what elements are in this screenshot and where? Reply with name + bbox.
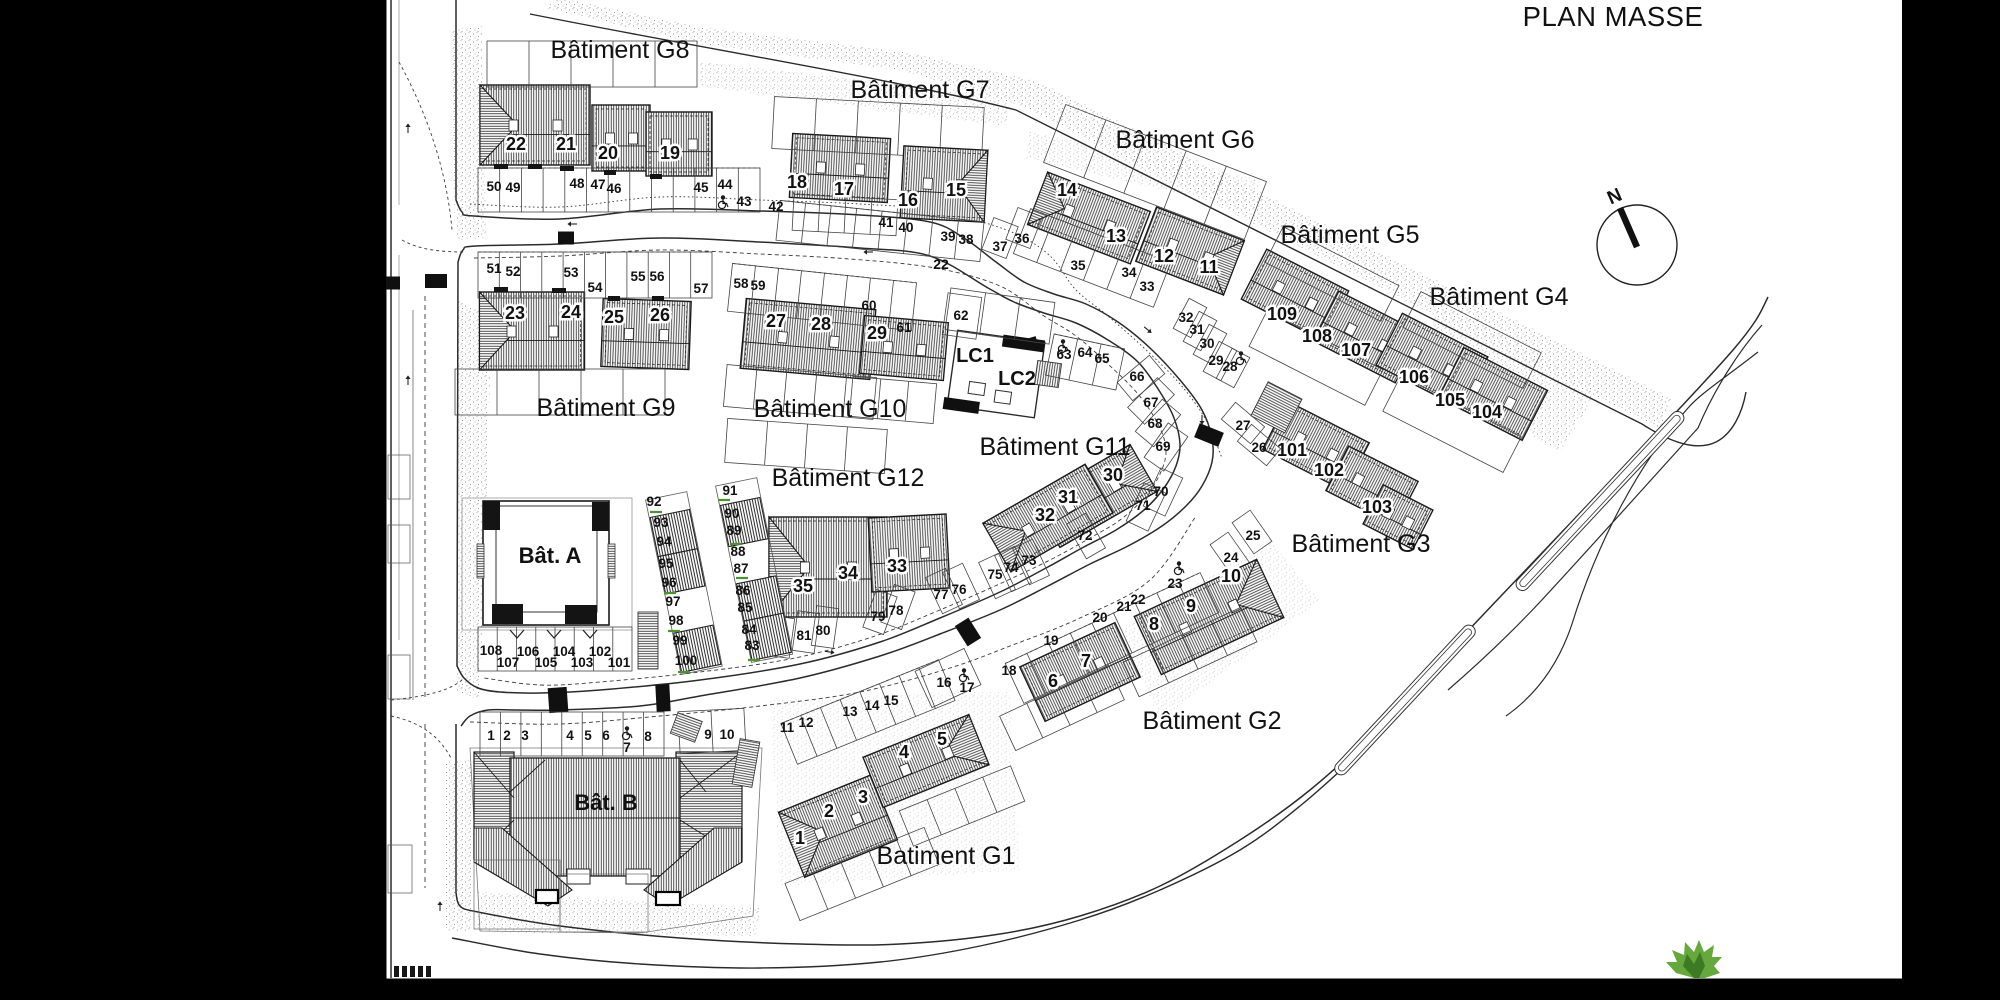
svg-text:4: 4: [899, 742, 909, 762]
svg-text:38: 38: [958, 232, 974, 247]
svg-text:88: 88: [730, 544, 746, 559]
svg-text:31: 31: [1058, 487, 1078, 507]
svg-text:59: 59: [750, 278, 765, 293]
svg-text:3: 3: [858, 787, 868, 807]
svg-text:106: 106: [1399, 367, 1429, 387]
svg-text:27: 27: [1235, 418, 1250, 433]
svg-text:60: 60: [861, 298, 876, 313]
svg-text:107: 107: [1341, 340, 1371, 360]
svg-text:PLAN MASSE: PLAN MASSE: [1523, 1, 1704, 32]
svg-text:10: 10: [719, 727, 734, 742]
svg-text:66: 66: [1129, 369, 1145, 384]
svg-text:11: 11: [1199, 257, 1218, 277]
svg-text:87: 87: [733, 561, 748, 576]
svg-text:95: 95: [658, 556, 674, 571]
svg-text:68: 68: [1147, 416, 1163, 431]
svg-text:84: 84: [741, 622, 757, 637]
svg-text:23: 23: [505, 303, 525, 323]
svg-text:Bâtiment G11: Bâtiment G11: [979, 433, 1130, 461]
svg-text:57: 57: [693, 281, 708, 296]
svg-text:43: 43: [736, 194, 752, 209]
svg-text:34: 34: [1121, 265, 1137, 280]
svg-text:47: 47: [590, 177, 605, 192]
svg-text:34: 34: [838, 563, 858, 583]
svg-text:35: 35: [1070, 258, 1086, 273]
svg-text:58: 58: [733, 276, 749, 291]
svg-text:12: 12: [1154, 246, 1174, 266]
svg-text:100: 100: [675, 653, 698, 668]
svg-text:33: 33: [1139, 279, 1155, 294]
svg-text:Bâtiment G6: Bâtiment G6: [1116, 126, 1255, 154]
svg-text:8: 8: [644, 729, 652, 744]
svg-text:55: 55: [630, 269, 646, 284]
svg-text:16: 16: [936, 675, 952, 690]
svg-text:22: 22: [933, 256, 949, 272]
svg-text:13: 13: [1106, 226, 1126, 246]
svg-text:54: 54: [587, 280, 603, 295]
svg-text:29: 29: [867, 323, 887, 343]
svg-text:6: 6: [602, 728, 610, 743]
svg-text:105: 105: [1435, 390, 1465, 410]
svg-text:7: 7: [623, 740, 631, 755]
svg-text:98: 98: [668, 613, 684, 628]
svg-text:91: 91: [722, 483, 738, 498]
svg-text:10: 10: [1221, 566, 1241, 586]
svg-text:35: 35: [793, 576, 813, 596]
svg-text:36: 36: [1014, 231, 1030, 246]
svg-text:39: 39: [940, 229, 955, 244]
svg-text:70: 70: [1153, 484, 1168, 499]
svg-text:50: 50: [486, 179, 501, 194]
svg-text:53: 53: [563, 265, 579, 280]
svg-text:Bâtiment G3: Bâtiment G3: [1292, 530, 1431, 558]
svg-text:15: 15: [883, 693, 899, 708]
svg-text:29: 29: [1208, 353, 1223, 368]
svg-text:108: 108: [1302, 326, 1332, 346]
svg-text:45: 45: [693, 180, 709, 195]
svg-text:15: 15: [946, 180, 966, 200]
svg-text:42: 42: [768, 199, 783, 214]
svg-text:25: 25: [1245, 528, 1261, 543]
svg-text:93: 93: [653, 515, 669, 530]
svg-text:32: 32: [1035, 505, 1055, 525]
svg-text:23: 23: [1167, 576, 1183, 591]
svg-text:2: 2: [824, 801, 834, 821]
svg-text:77: 77: [933, 587, 948, 602]
svg-text:22: 22: [1130, 592, 1145, 607]
svg-text:81: 81: [796, 628, 812, 643]
svg-text:78: 78: [888, 603, 904, 618]
svg-text:13: 13: [842, 704, 858, 719]
svg-text:83: 83: [744, 638, 760, 653]
svg-text:74: 74: [1003, 560, 1019, 575]
svg-text:104: 104: [1472, 402, 1502, 422]
svg-text:71: 71: [1135, 498, 1151, 513]
svg-text:24: 24: [1223, 550, 1239, 565]
svg-text:61: 61: [896, 320, 912, 335]
svg-text:18: 18: [787, 172, 807, 192]
svg-text:18: 18: [1001, 663, 1017, 678]
svg-text:75: 75: [987, 567, 1003, 582]
svg-text:96: 96: [661, 575, 677, 590]
svg-text:Bâtiment G2: Bâtiment G2: [1143, 707, 1282, 735]
svg-text:24: 24: [561, 302, 581, 322]
svg-text:14: 14: [1057, 180, 1077, 200]
svg-text:6: 6: [1048, 671, 1058, 691]
svg-text:48: 48: [569, 176, 585, 191]
svg-text:76: 76: [951, 582, 967, 597]
svg-text:28: 28: [1222, 359, 1238, 374]
svg-text:3: 3: [521, 728, 529, 743]
svg-text:20: 20: [598, 143, 618, 163]
svg-text:21: 21: [556, 134, 576, 154]
svg-text:79: 79: [870, 609, 885, 624]
svg-text:Bât. A: Bât. A: [519, 543, 582, 568]
svg-text:5: 5: [937, 729, 947, 749]
svg-text:102: 102: [1314, 460, 1344, 480]
svg-text:109: 109: [1267, 304, 1297, 324]
svg-text:22: 22: [506, 134, 526, 154]
svg-text:73: 73: [1021, 553, 1037, 568]
svg-text:30: 30: [1199, 336, 1214, 351]
svg-text:1: 1: [795, 828, 805, 848]
svg-text:Bâtiment G5: Bâtiment G5: [1281, 221, 1420, 249]
svg-text:Bâtiment G12: Bâtiment G12: [772, 464, 925, 492]
svg-text:Bâtiment G10: Bâtiment G10: [754, 395, 907, 423]
svg-text:27: 27: [766, 311, 786, 331]
svg-text:9: 9: [704, 727, 712, 742]
svg-text:101: 101: [1277, 440, 1307, 460]
svg-text:40: 40: [898, 220, 913, 235]
svg-text:90: 90: [724, 506, 739, 521]
svg-text:Bâtiment G8: Bâtiment G8: [551, 36, 690, 64]
svg-text:11: 11: [780, 720, 795, 735]
svg-text:17: 17: [959, 680, 974, 695]
svg-text:31: 31: [1189, 322, 1205, 337]
svg-text:17: 17: [834, 179, 854, 199]
svg-text:103: 103: [1362, 497, 1392, 517]
svg-text:Batiment G1: Batiment G1: [877, 842, 1016, 870]
svg-text:28: 28: [811, 314, 831, 334]
svg-text:69: 69: [1155, 439, 1170, 454]
svg-text:80: 80: [815, 623, 830, 638]
svg-text:9: 9: [1186, 596, 1196, 616]
svg-text:72: 72: [1077, 528, 1092, 543]
svg-text:101: 101: [608, 655, 631, 670]
svg-text:67: 67: [1143, 395, 1158, 410]
svg-text:92: 92: [646, 494, 661, 509]
svg-text:52: 52: [505, 264, 520, 279]
svg-text:86: 86: [735, 583, 751, 598]
svg-text:49: 49: [505, 180, 520, 195]
svg-text:41: 41: [878, 215, 894, 230]
svg-text:33: 33: [887, 556, 907, 576]
svg-text:94: 94: [656, 534, 672, 549]
svg-text:Bâtiment G4: Bâtiment G4: [1430, 283, 1569, 311]
svg-text:46: 46: [606, 181, 622, 196]
svg-text:LC2: LC2: [998, 368, 1036, 390]
svg-text:26: 26: [650, 305, 670, 325]
svg-text:2: 2: [503, 728, 511, 743]
svg-text:7: 7: [1081, 651, 1091, 671]
svg-text:64: 64: [1077, 345, 1093, 360]
svg-text:89: 89: [726, 523, 741, 538]
svg-text:5: 5: [584, 728, 592, 743]
svg-text:51: 51: [486, 261, 502, 276]
svg-text:30: 30: [1103, 465, 1123, 485]
svg-text:44: 44: [717, 177, 733, 192]
svg-text:14: 14: [864, 698, 880, 713]
svg-text:62: 62: [953, 308, 968, 323]
svg-text:4: 4: [566, 728, 574, 743]
svg-text:20: 20: [1092, 610, 1107, 625]
svg-text:8: 8: [1149, 614, 1159, 634]
svg-text:65: 65: [1094, 351, 1110, 366]
svg-text:19: 19: [1043, 633, 1058, 648]
svg-text:Bâtiment G9: Bâtiment G9: [537, 394, 676, 422]
svg-text:26: 26: [1251, 440, 1267, 455]
svg-text:97: 97: [665, 594, 680, 609]
svg-text:99: 99: [672, 633, 687, 648]
svg-text:56: 56: [649, 269, 665, 284]
svg-text:19: 19: [660, 143, 680, 163]
svg-text:37: 37: [992, 239, 1007, 254]
svg-text:Bât. B: Bât. B: [574, 790, 638, 815]
svg-text:16: 16: [898, 190, 918, 210]
svg-text:12: 12: [798, 715, 813, 730]
svg-text:1: 1: [487, 728, 495, 743]
svg-text:85: 85: [737, 600, 753, 615]
svg-text:25: 25: [604, 307, 624, 327]
svg-text:Bâtiment G7: Bâtiment G7: [851, 76, 990, 104]
svg-text:LC1: LC1: [956, 345, 994, 367]
